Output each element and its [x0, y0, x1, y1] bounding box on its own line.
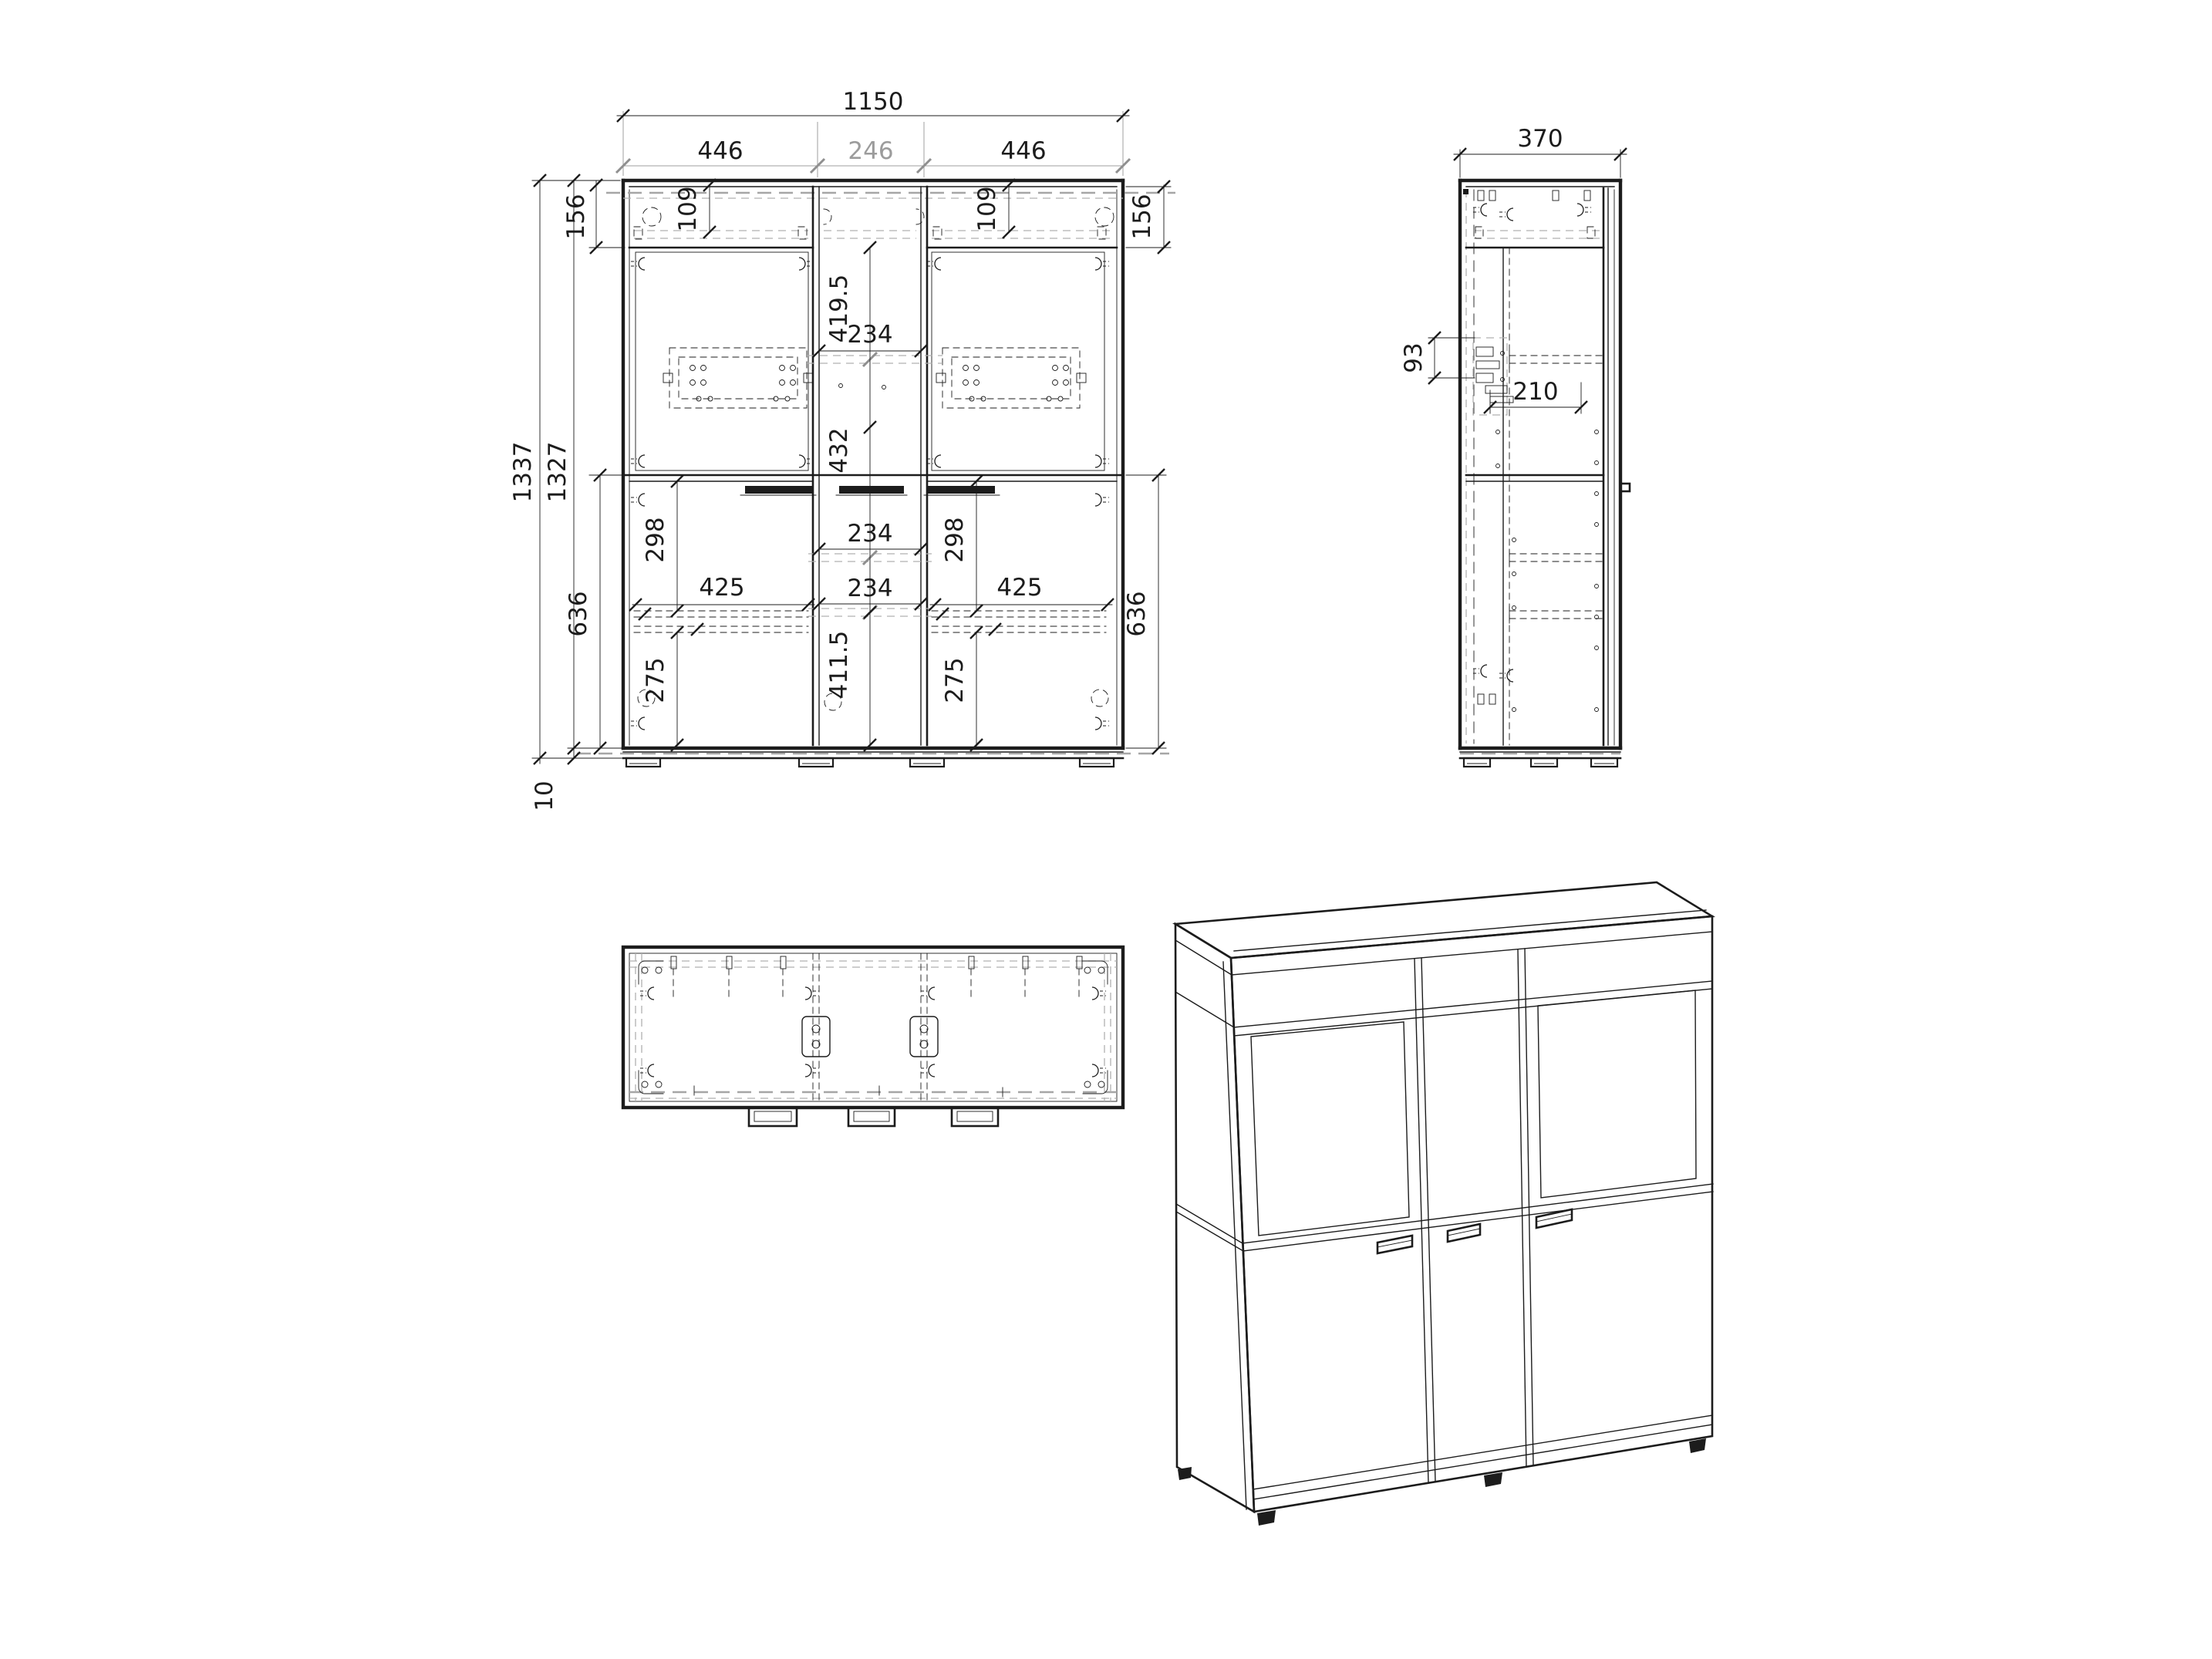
front-handle-center	[839, 486, 904, 494]
dim-top-rail-right: 156	[1128, 194, 1156, 239]
front-foot-center-right	[910, 758, 944, 767]
iso-top-face	[1175, 882, 1712, 958]
front-top-rail-hardware	[634, 207, 1114, 239]
dim-base-right: 636	[1123, 591, 1151, 636]
dim-top-offset-left-door: 109	[674, 186, 702, 231]
side-interior-details	[1463, 189, 1603, 712]
side-dimensions: 370 93 210	[1400, 125, 1627, 413]
iso-glass-door-left	[1251, 1022, 1409, 1236]
side-cabinet-outline	[1460, 180, 1630, 767]
dim-center-width: 246	[848, 137, 893, 165]
bottom-view	[623, 947, 1123, 1126]
iso-handle-center	[1448, 1224, 1480, 1242]
side-foot-middle	[1531, 758, 1557, 767]
iso-glass-door-right	[1538, 990, 1696, 1198]
side-view: 370 93 210	[1400, 125, 1630, 767]
dim-center-width-c: 234	[847, 575, 892, 602]
front-foot-left	[626, 758, 660, 767]
front-handle-left	[745, 486, 813, 494]
front-dimensions: 1150 446 246 446 1337 1327 10 15	[509, 88, 1171, 811]
front-view: 1150 446 246 446 1337 1327 10 15	[509, 88, 1175, 811]
iso-feet	[1178, 1438, 1706, 1526]
dim-lower-door-height: 411.5	[825, 631, 853, 700]
side-foot-front	[1464, 758, 1490, 767]
front-handle-right	[927, 486, 995, 494]
dim-hanger-depth: 210	[1512, 378, 1558, 406]
front-foot-center-left	[799, 758, 833, 767]
drawing-canvas: 1150 446 246 446 1337 1327 10 15	[0, 0, 2212, 1659]
plan-fittings	[639, 956, 1108, 1097]
iso-handles	[1377, 1209, 1572, 1253]
dim-right-door-width: 446	[1000, 137, 1046, 165]
dim-shelf-width-right: 425	[996, 574, 1042, 602]
dim-depth: 370	[1517, 125, 1563, 153]
side-foot-back	[1591, 758, 1617, 767]
dim-shelf-top-right: 298	[941, 517, 969, 562]
dim-shelf-bottom-left: 275	[642, 657, 669, 703]
front-foot-right	[1080, 758, 1114, 767]
plan-outline	[623, 947, 1123, 1108]
dim-base-left: 636	[565, 591, 592, 636]
dim-top-offset-right-door: 109	[973, 186, 1001, 231]
dim-left-door-width: 446	[697, 137, 743, 165]
iso-view	[1175, 882, 1713, 1526]
dim-shelf-width-left: 425	[699, 574, 744, 602]
front-shelf-bracket-right	[936, 348, 1086, 408]
iso-cabinet-body	[1175, 882, 1713, 1512]
hinge-drill-icon	[642, 207, 661, 226]
dim-center-section: 432	[825, 427, 853, 473]
technical-drawing: 1150 446 246 446 1337 1327 10 15	[0, 0, 2212, 1659]
dim-hanger-height: 93	[1400, 342, 1428, 373]
dim-overall-width: 1150	[843, 88, 904, 116]
dim-overall-height: 1337	[509, 442, 537, 503]
dim-shelf-bottom-right: 275	[941, 657, 969, 703]
dim-center-width-a: 234	[847, 321, 892, 349]
dim-shelf-top-left: 298	[642, 517, 669, 562]
iso-handle-left	[1377, 1236, 1412, 1253]
dim-center-width-b: 234	[847, 520, 892, 548]
hinge-drill-icon	[1095, 207, 1114, 226]
dim-top-rail-left: 156	[562, 194, 590, 239]
dim-plinth-height: 10	[531, 781, 558, 811]
front-shelf-bracket-left	[663, 348, 813, 408]
dim-carcass-height: 1327	[544, 442, 572, 503]
plan-feet	[749, 1108, 998, 1126]
